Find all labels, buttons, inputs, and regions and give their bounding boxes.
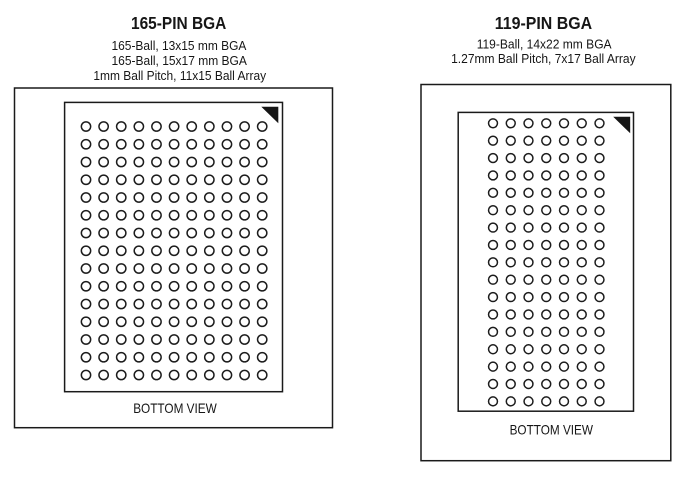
svg-text:1mm Ball Pitch, 11x15 Ball Arr: 1mm Ball Pitch, 11x15 Ball Array — [93, 68, 266, 83]
svg-text:165-Ball, 15x17 mm BGA: 165-Ball, 15x17 mm BGA — [112, 53, 248, 68]
svg-text:119-Ball, 14x22 mm BGA: 119-Ball, 14x22 mm BGA — [477, 36, 612, 51]
svg-text:1.27mm Ball Pitch, 7x17 Ball A: 1.27mm Ball Pitch, 7x17 Ball Array — [451, 51, 636, 66]
svg-text:BOTTOM VIEW: BOTTOM VIEW — [133, 401, 217, 416]
svg-text:119-PIN BGA: 119-PIN BGA — [495, 13, 593, 33]
svg-text:165-PIN BGA: 165-PIN BGA — [131, 13, 227, 33]
svg-text:165-Ball, 13x15 mm BGA: 165-Ball, 13x15 mm BGA — [112, 38, 247, 53]
svg-text:BOTTOM VIEW: BOTTOM VIEW — [510, 423, 593, 438]
